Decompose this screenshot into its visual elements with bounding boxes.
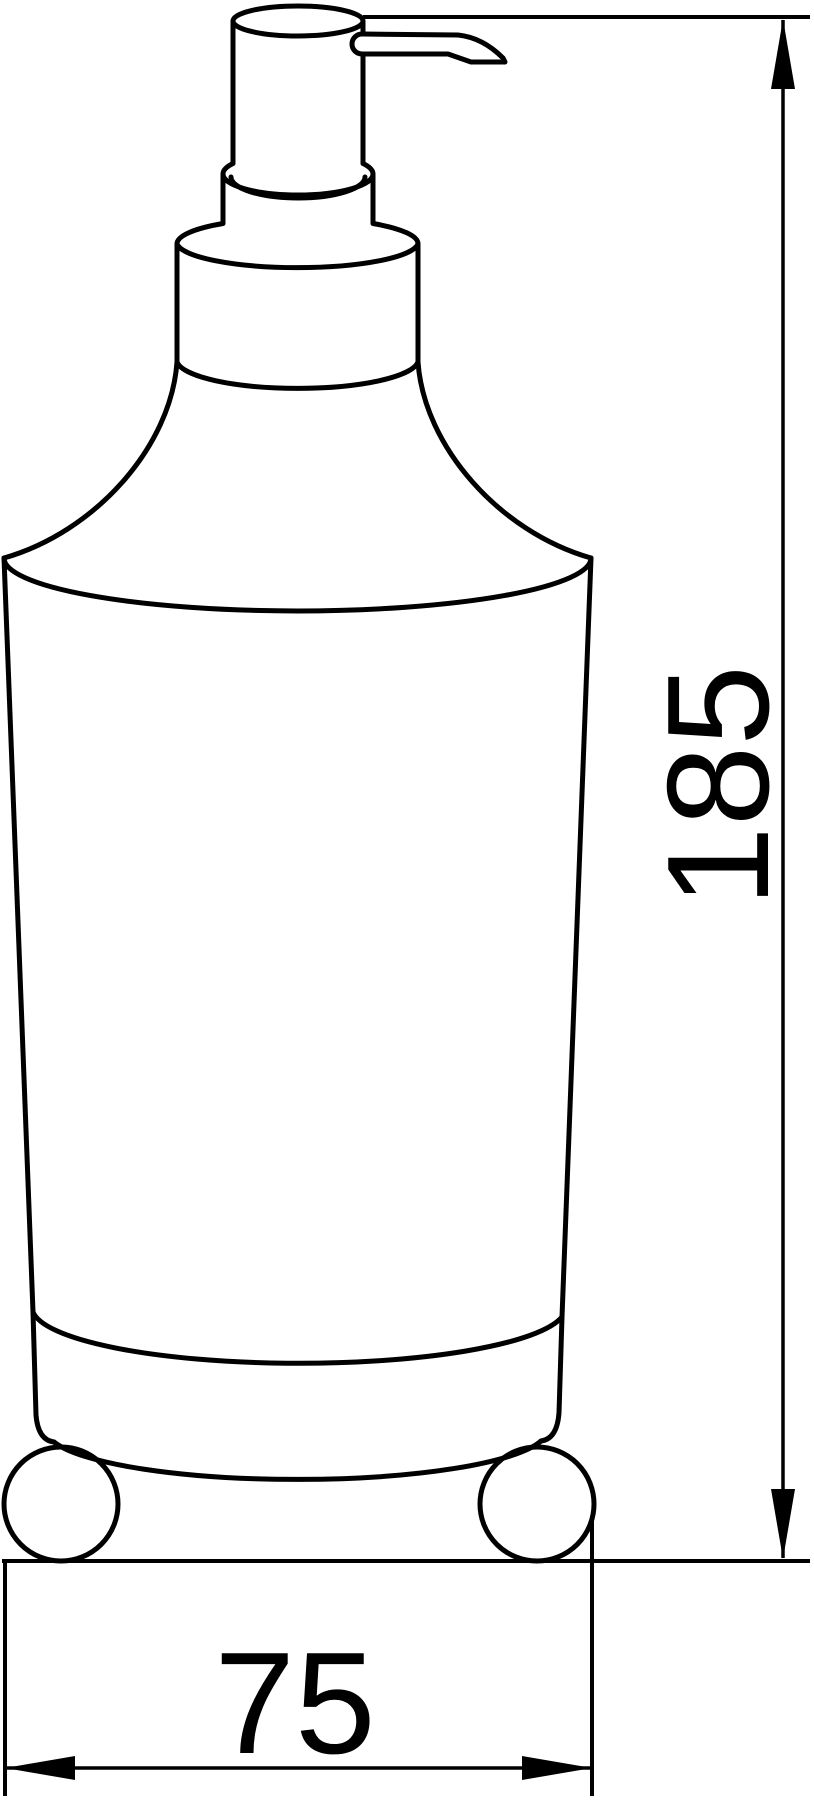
height-dimension-label: 185 xyxy=(637,665,799,907)
width-arrow-right-icon xyxy=(522,1756,592,1780)
width-dimension-label: 75 xyxy=(214,1622,375,1784)
foot-right xyxy=(480,1447,594,1561)
height-arrow-up-icon xyxy=(771,19,795,89)
height-dimension: 185 xyxy=(363,17,810,1559)
height-arrow-down-icon xyxy=(771,1489,795,1559)
pump-spout xyxy=(352,34,505,62)
foot-left xyxy=(4,1447,118,1561)
width-arrow-left-icon xyxy=(5,1756,75,1780)
pump-cap-top xyxy=(233,6,363,36)
shoulder-left xyxy=(4,362,177,558)
body-top-rim xyxy=(4,558,591,611)
holder-top-rim xyxy=(33,1312,562,1363)
body-sides xyxy=(4,558,591,1317)
soap-dispenser-outline xyxy=(4,6,594,1561)
holder-sides xyxy=(33,1312,562,1442)
neck-top-rim xyxy=(177,224,418,268)
dimension-drawing-canvas: 185 75 xyxy=(0,0,814,1800)
pump-cap-sides xyxy=(233,21,363,163)
neck-bottom-rim xyxy=(177,362,418,388)
shoulder-right xyxy=(418,362,591,558)
holder-bottom-rim xyxy=(54,1441,541,1479)
